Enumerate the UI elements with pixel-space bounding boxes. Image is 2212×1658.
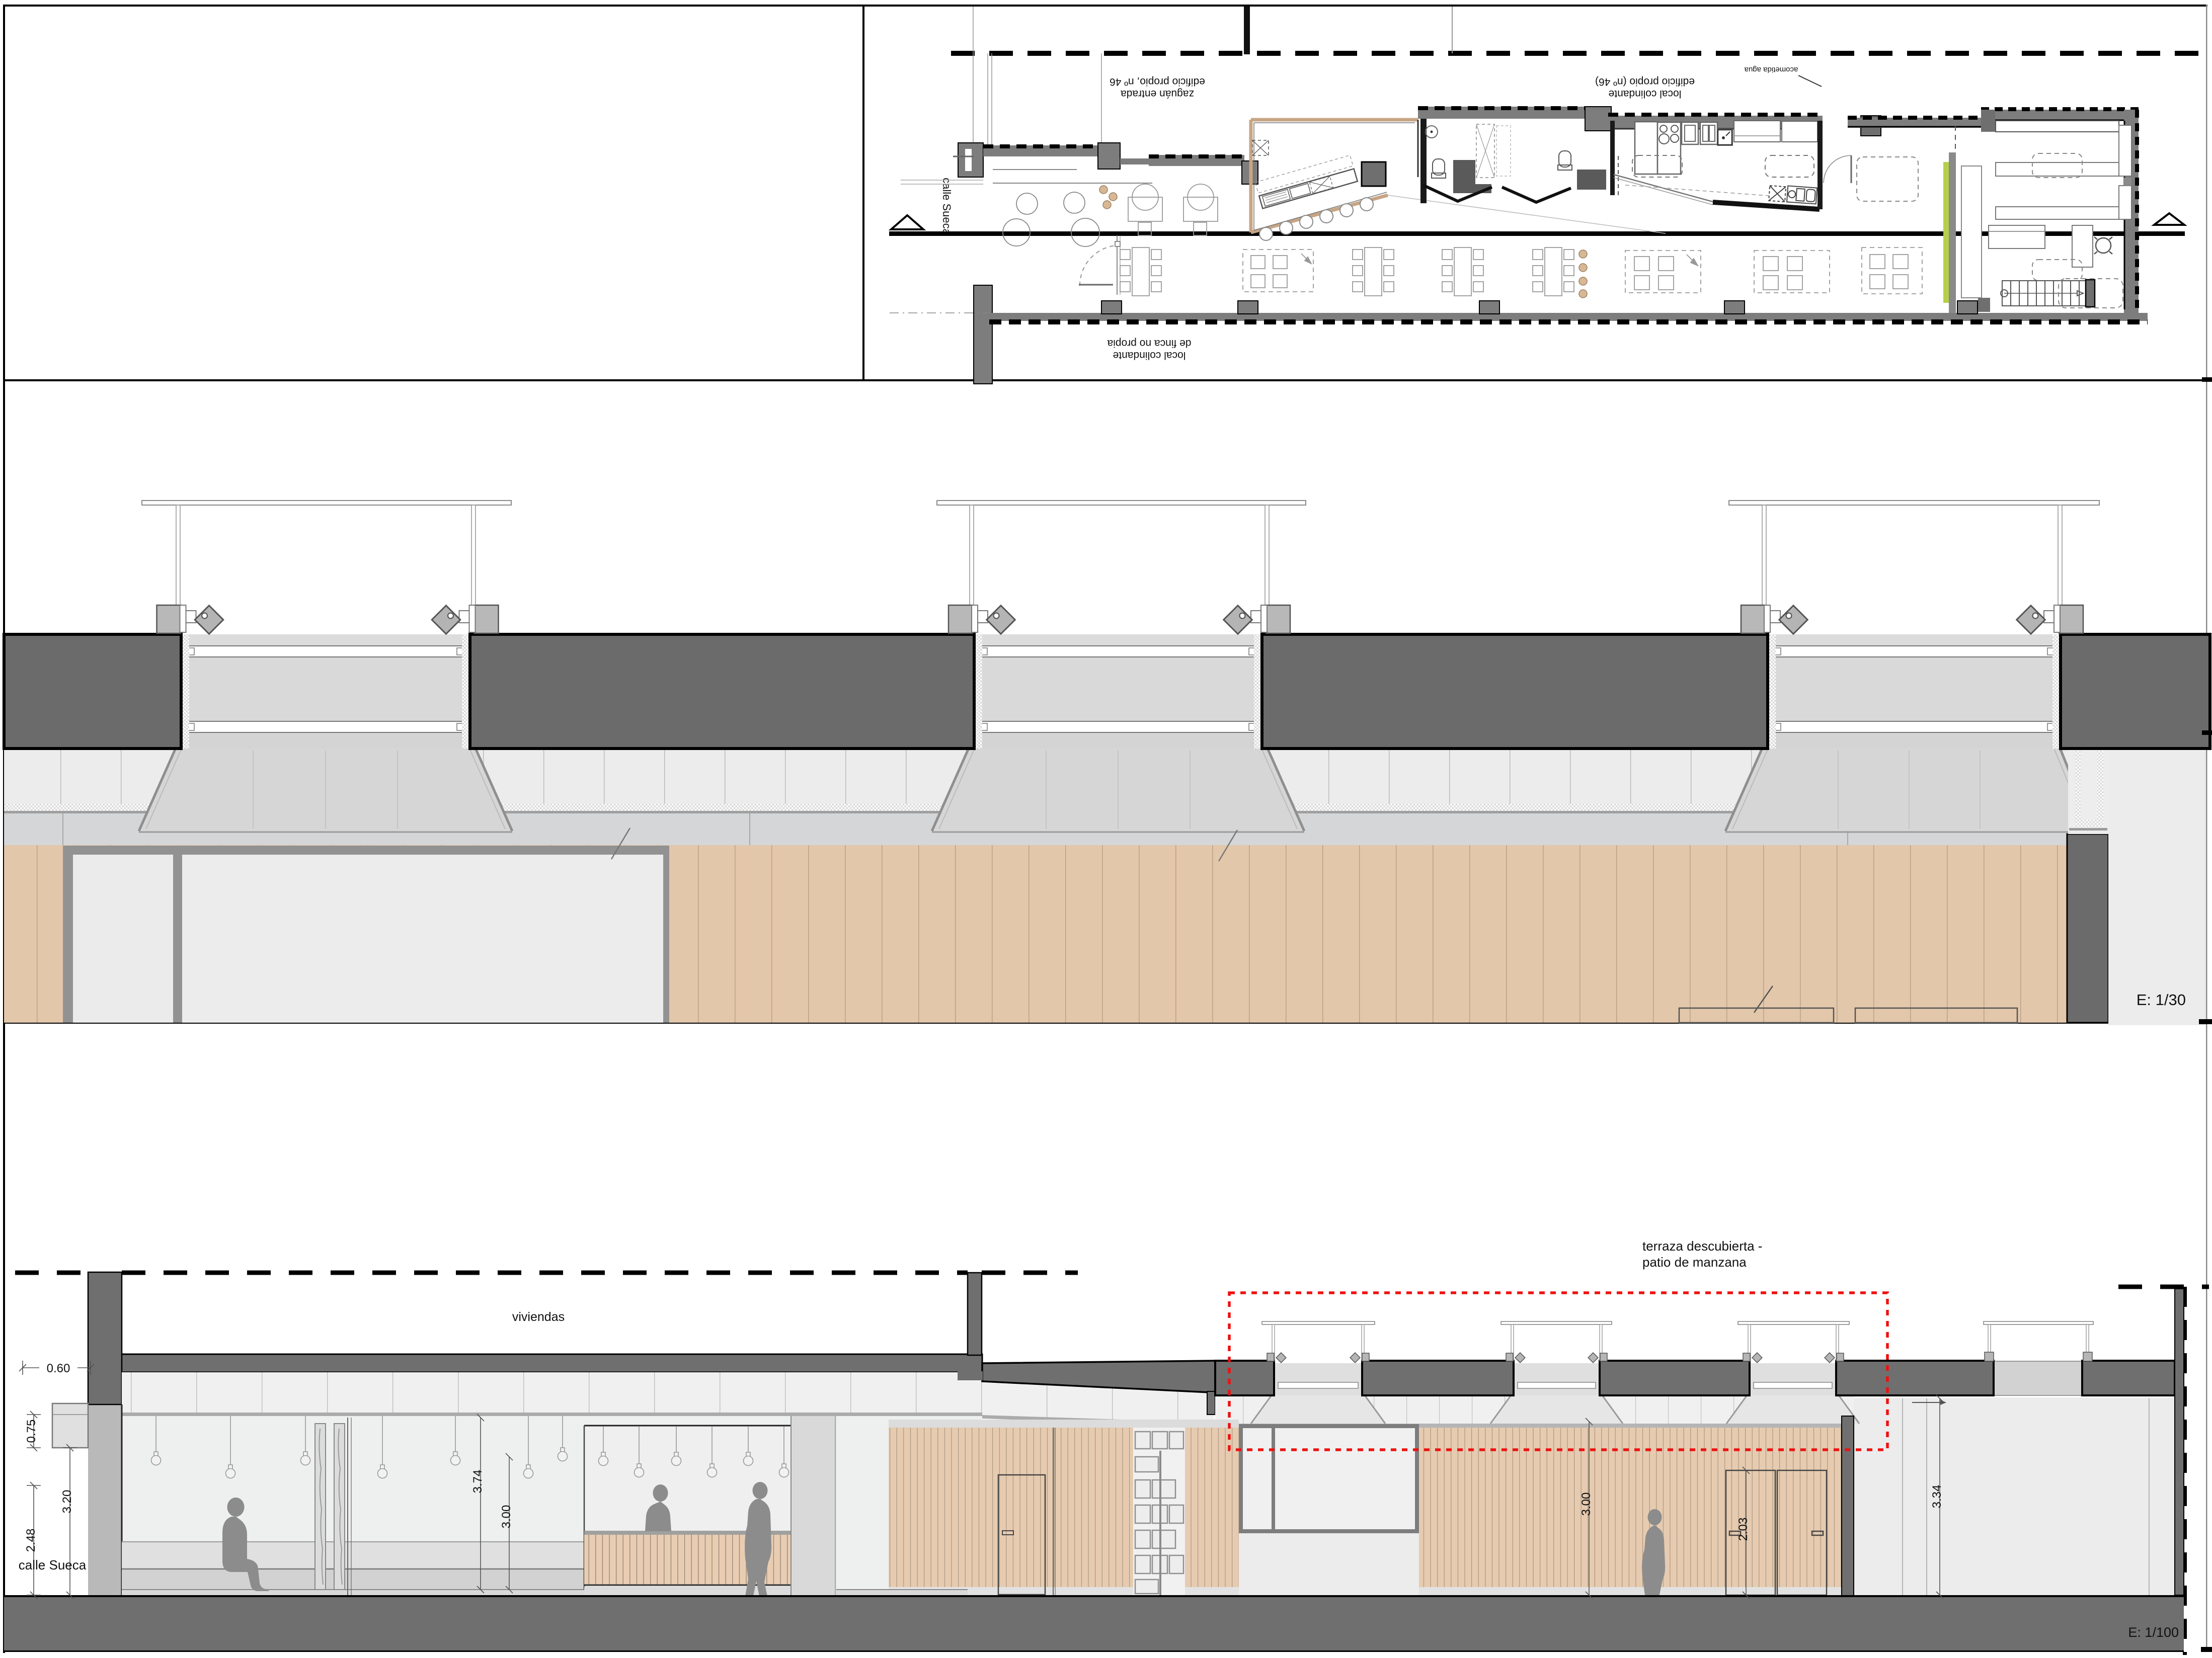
svg-text:zaguán entrada: zaguán entrada: [1121, 88, 1194, 100]
svg-text:edificio propio, nº 46: edificio propio, nº 46: [1110, 76, 1205, 88]
svg-text:3.00: 3.00: [1579, 1493, 1593, 1516]
svg-text:3.00: 3.00: [500, 1505, 513, 1529]
svg-text:3.20: 3.20: [60, 1490, 74, 1514]
svg-text:patio de manzana: patio de manzana: [1642, 1255, 1747, 1270]
svg-text:E: 1/100: E: 1/100: [2128, 1625, 2179, 1640]
svg-text:calle Sueca: calle Sueca: [19, 1557, 87, 1572]
svg-text:de finca no propia: de finca no propia: [1107, 338, 1191, 349]
svg-text:viviendas: viviendas: [512, 1310, 565, 1324]
svg-text:terraza descubierta -: terraza descubierta -: [1642, 1238, 1762, 1254]
svg-text:acometida agua: acometida agua: [1744, 65, 1798, 74]
svg-text:2.48: 2.48: [24, 1529, 38, 1552]
svg-text:local colindante: local colindante: [1609, 88, 1682, 100]
svg-text:2.03: 2.03: [1736, 1518, 1750, 1541]
svg-text:3.34: 3.34: [1930, 1485, 1944, 1509]
svg-text:local colindante: local colindante: [1113, 350, 1186, 361]
svg-text:E: 1/30: E: 1/30: [2137, 991, 2186, 1009]
svg-text:3.74: 3.74: [471, 1470, 485, 1494]
svg-text:0.60: 0.60: [47, 1362, 70, 1375]
svg-text:0.75: 0.75: [25, 1420, 38, 1443]
svg-text:edificio propio (nº 46): edificio propio (nº 46): [1595, 76, 1695, 88]
svg-text:calle Sueca: calle Sueca: [940, 178, 953, 235]
